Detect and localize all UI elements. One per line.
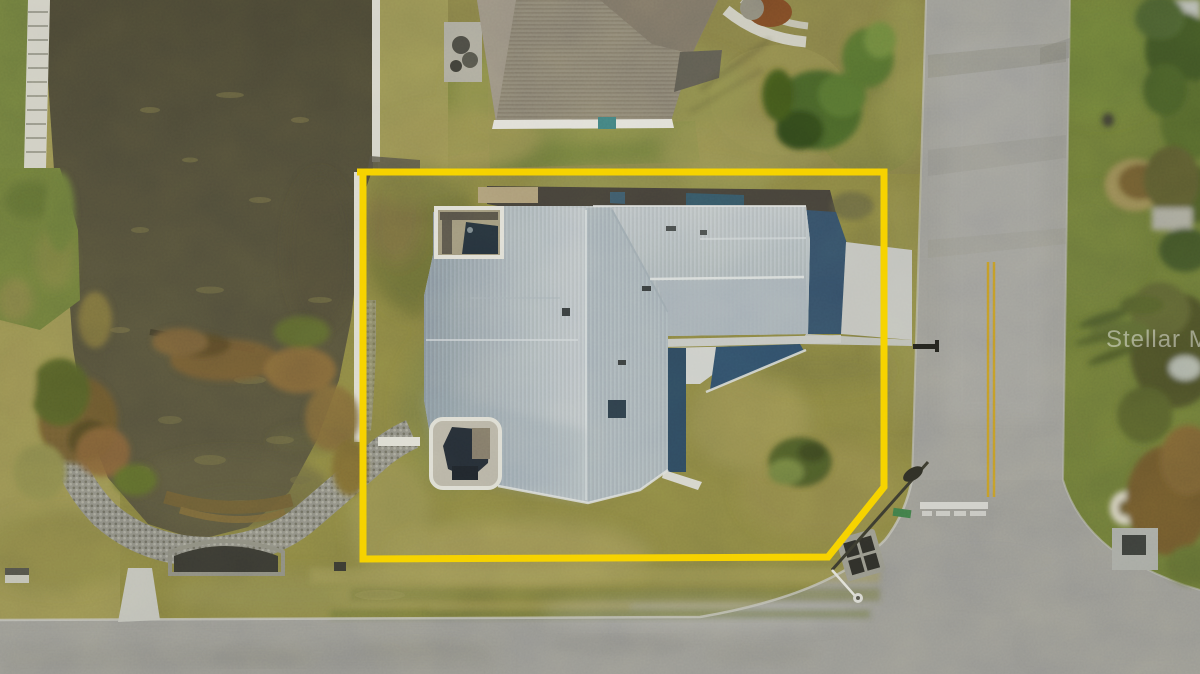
svg-text:Stellar ML: Stellar ML bbox=[1106, 326, 1200, 353]
